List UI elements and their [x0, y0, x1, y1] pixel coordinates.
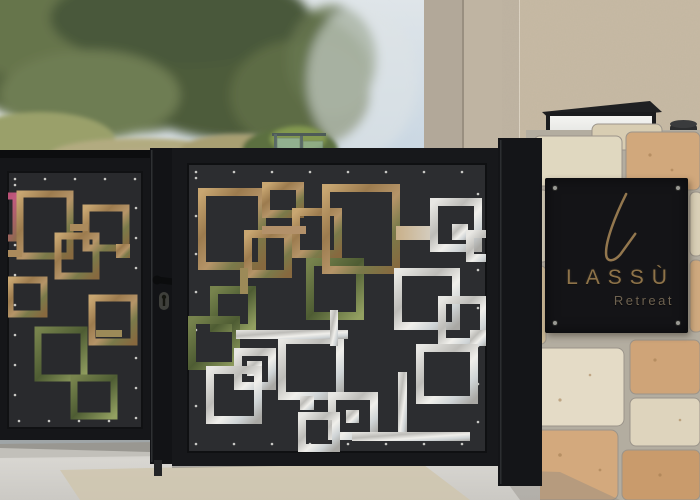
screw-icon — [553, 186, 557, 190]
building-column — [424, 0, 464, 154]
photo-entrance-gate: LASSÙ Retreat — [0, 0, 700, 500]
main-gate-panel — [172, 148, 502, 466]
sign-subtitle: Retreat — [614, 293, 688, 308]
keyhole — [159, 292, 169, 310]
lassu-logo-icon — [588, 190, 646, 266]
left-fence-panel — [0, 158, 152, 440]
entrance-gate — [0, 138, 542, 486]
screw-icon — [676, 186, 680, 190]
screw-icon — [553, 321, 557, 325]
building-wall-face — [464, 0, 522, 158]
screw-icon — [676, 321, 680, 325]
retreat-sign: LASSÙ Retreat — [545, 178, 688, 333]
gate-hinge-post — [498, 138, 542, 486]
sign-title: LASSÙ — [558, 266, 675, 290]
